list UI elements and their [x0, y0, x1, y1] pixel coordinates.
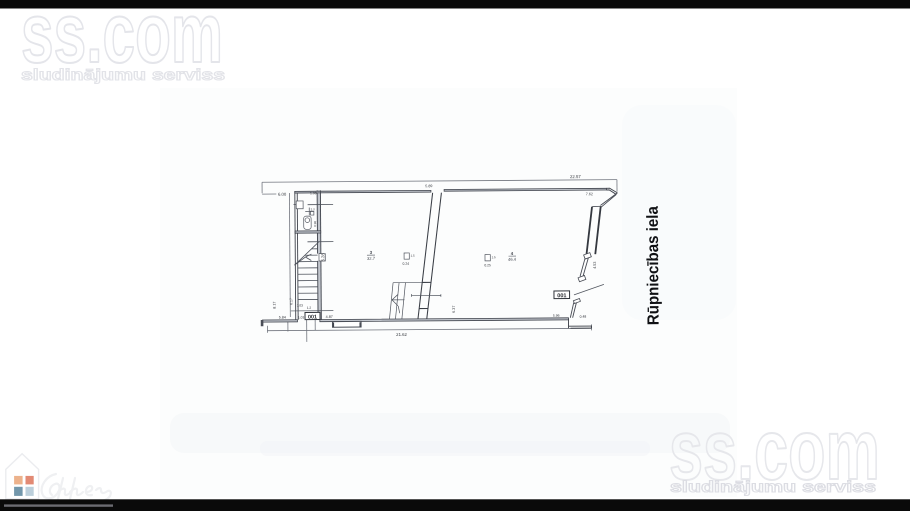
svg-text:1.2: 1.2 [307, 306, 312, 310]
svg-text:6.17: 6.17 [289, 298, 293, 305]
svg-text:5.89: 5.89 [425, 184, 432, 188]
svg-text:1.03: 1.03 [298, 316, 304, 320]
svg-text:5.28: 5.28 [320, 253, 325, 262]
svg-text:6.37: 6.37 [452, 306, 456, 313]
svg-text:1.5: 1.5 [492, 255, 496, 259]
svg-text:4.53: 4.53 [593, 262, 597, 269]
svg-text:22.57: 22.57 [570, 174, 581, 179]
svg-text:001: 001 [308, 315, 317, 321]
svg-text:sludinājumu serviss: sludinājumu serviss [21, 67, 225, 84]
svg-text:21.62: 21.62 [396, 332, 407, 337]
svg-text:1.98: 1.98 [310, 191, 317, 195]
svg-text:0.98: 0.98 [313, 221, 317, 227]
svg-text:sludinājumu serviss: sludinājumu serviss [670, 479, 876, 496]
svg-text:8.17: 8.17 [273, 302, 277, 309]
svg-text:6.00: 6.00 [278, 192, 287, 197]
svg-text:Rūpniecības iela: Rūpniecības iela [644, 205, 663, 325]
svg-text:0.48: 0.48 [580, 315, 587, 319]
svg-text:001: 001 [557, 293, 566, 299]
svg-text:1.03: 1.03 [297, 304, 303, 308]
svg-text:32.7: 32.7 [367, 256, 376, 261]
svg-text:7.62: 7.62 [586, 192, 593, 196]
svg-text:2.3: 2.3 [311, 207, 315, 211]
svg-text:5.84: 5.84 [279, 315, 286, 319]
svg-text:4.87: 4.87 [326, 315, 333, 319]
svg-text:0.25: 0.25 [484, 263, 491, 267]
svg-text:46.4: 46.4 [508, 257, 517, 262]
svg-text:1.5: 1.5 [411, 254, 415, 258]
svg-text:0.24: 0.24 [403, 262, 410, 266]
svg-text:5.96: 5.96 [553, 314, 560, 318]
